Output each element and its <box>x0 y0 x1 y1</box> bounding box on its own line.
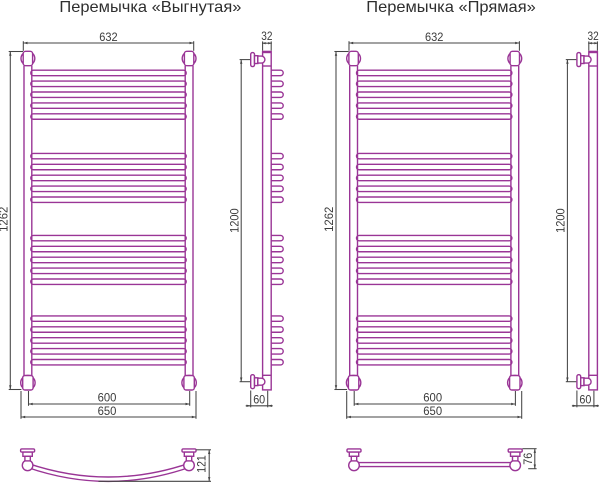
svg-text:1200: 1200 <box>227 208 241 233</box>
svg-text:32: 32 <box>588 29 599 43</box>
svg-text:650: 650 <box>423 404 442 418</box>
svg-text:Перемычка «Прямая»: Перемычка «Прямая» <box>366 0 536 16</box>
svg-text:632: 632 <box>99 30 118 44</box>
svg-text:76: 76 <box>521 453 535 465</box>
svg-text:60: 60 <box>579 393 591 407</box>
svg-text:Перемычка «Выгнутая»: Перемычка «Выгнутая» <box>59 0 241 16</box>
svg-text:60: 60 <box>253 393 265 407</box>
svg-text:1262: 1262 <box>0 207 11 232</box>
svg-text:121: 121 <box>195 455 209 473</box>
svg-text:650: 650 <box>98 404 117 418</box>
svg-text:32: 32 <box>261 29 272 43</box>
svg-text:1262: 1262 <box>322 207 336 232</box>
svg-text:600: 600 <box>423 391 442 405</box>
svg-text:600: 600 <box>98 391 117 405</box>
svg-text:632: 632 <box>425 30 444 44</box>
svg-text:1200: 1200 <box>554 208 568 233</box>
